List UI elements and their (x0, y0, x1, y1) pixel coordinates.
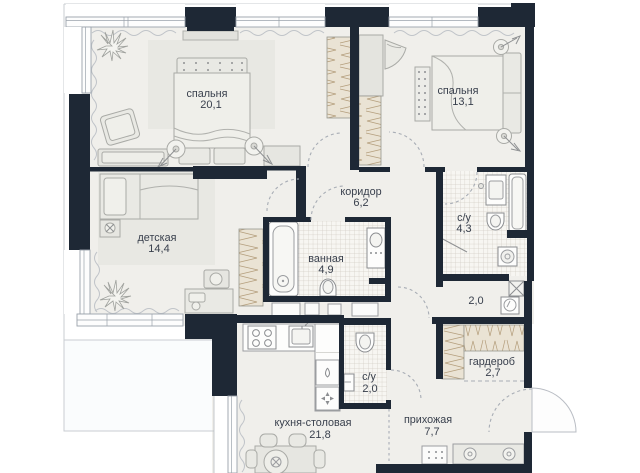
svg-text:2,7: 2,7 (485, 367, 500, 379)
svg-text:4,9: 4,9 (318, 264, 333, 276)
svg-text:13,1: 13,1 (452, 96, 473, 108)
svg-text:6,2: 6,2 (353, 197, 368, 209)
svg-text:20,1: 20,1 (200, 99, 221, 111)
svg-text:14,4: 14,4 (148, 243, 169, 255)
svg-text:2,0: 2,0 (362, 383, 377, 395)
svg-text:4,3: 4,3 (456, 223, 471, 235)
svg-text:прихожая: прихожая (404, 414, 452, 426)
svg-text:кухня-столовая: кухня-столовая (275, 417, 352, 429)
svg-text:2,0: 2,0 (468, 295, 483, 307)
svg-text:21,8: 21,8 (309, 429, 330, 441)
svg-text:с/у: с/у (362, 371, 376, 383)
svg-text:7,7: 7,7 (424, 426, 439, 438)
